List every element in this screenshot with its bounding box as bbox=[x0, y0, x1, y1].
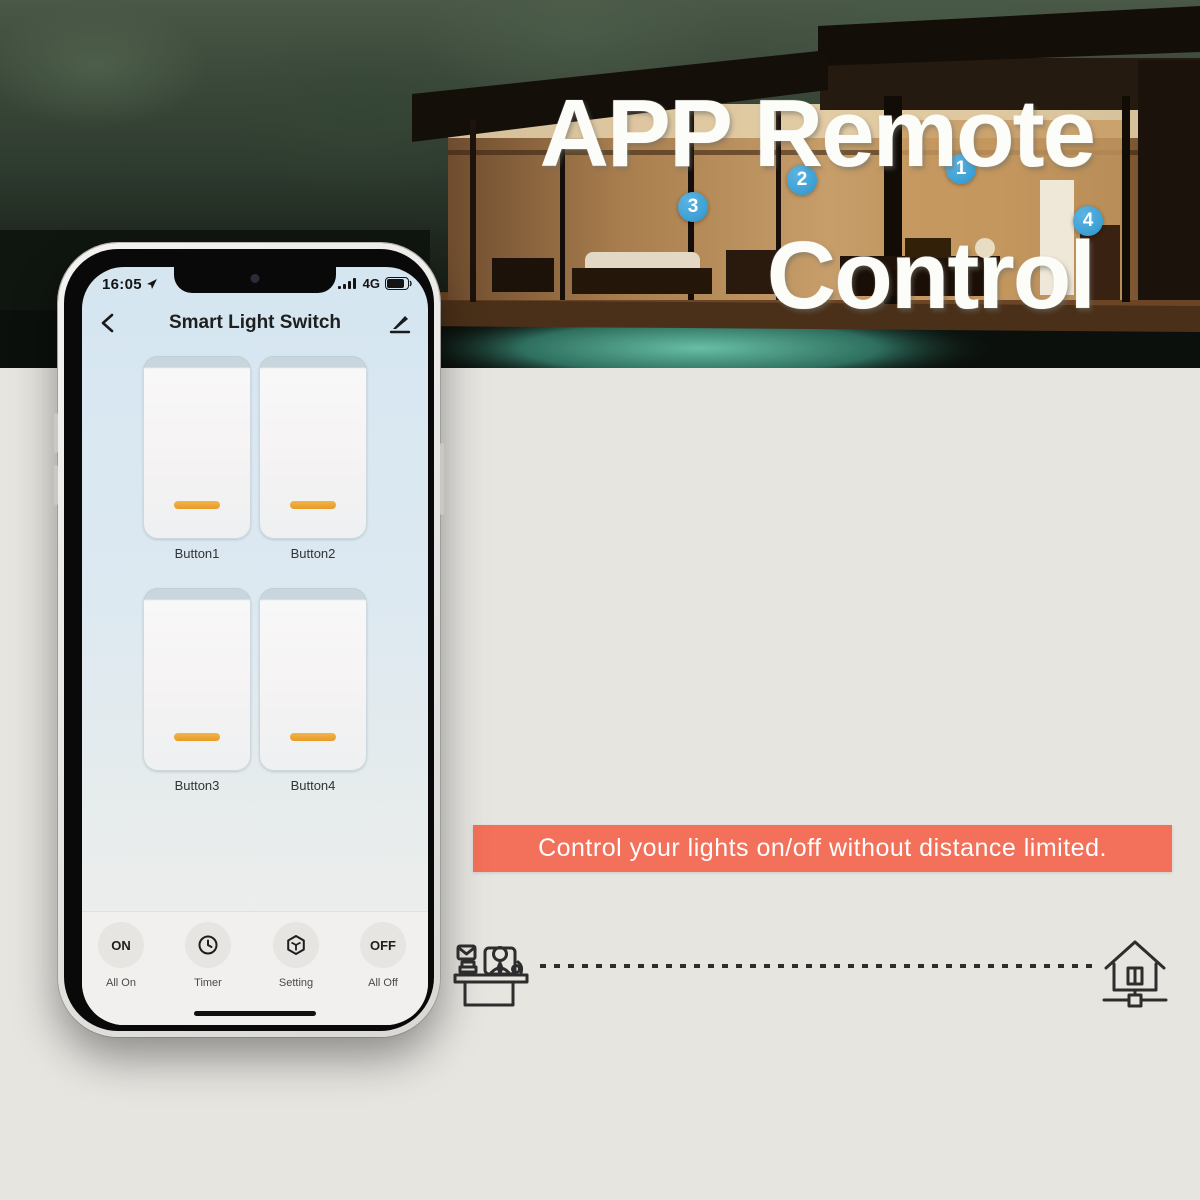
switch-button-3[interactable] bbox=[143, 588, 251, 771]
switch-button-1[interactable] bbox=[143, 356, 251, 539]
smartphone: 16:05 4G bbox=[58, 243, 440, 1037]
phone-screen: 16:05 4G bbox=[82, 267, 428, 1025]
notch bbox=[174, 267, 336, 293]
all-off-label: All Off bbox=[340, 977, 426, 989]
switch-label-3: Button3 bbox=[143, 778, 251, 793]
person-at-desk-icon bbox=[452, 934, 532, 1008]
headline-line-2: Control bbox=[540, 228, 1094, 324]
setting-button[interactable] bbox=[273, 922, 319, 968]
volume-up-button bbox=[54, 413, 58, 453]
home-indicator[interactable] bbox=[194, 1011, 316, 1016]
network-type-text: 4G bbox=[363, 276, 380, 291]
switch-label-1: Button1 bbox=[143, 546, 251, 561]
edit-button[interactable] bbox=[388, 312, 412, 336]
location-arrow-icon bbox=[146, 278, 158, 290]
phone-bezel: 16:05 4G bbox=[64, 249, 434, 1031]
timer-icon bbox=[197, 934, 219, 956]
all-off-button[interactable]: OFF bbox=[360, 922, 406, 968]
off-text-icon: OFF bbox=[370, 938, 396, 953]
headline-line-1: APP Remote bbox=[540, 86, 1094, 182]
switch-button-4[interactable] bbox=[259, 588, 367, 771]
switch-indicator-1 bbox=[174, 501, 220, 509]
headline: APP Remote Control bbox=[540, 86, 1094, 324]
app-header: Smart Light Switch bbox=[82, 307, 428, 341]
all-on-label: All On bbox=[82, 977, 164, 989]
all-on-button[interactable]: ON bbox=[98, 922, 144, 968]
volume-down-button bbox=[54, 465, 58, 505]
timer-button[interactable] bbox=[185, 922, 231, 968]
switch-label-2: Button2 bbox=[259, 546, 367, 561]
all-off-item: OFF All Off bbox=[340, 922, 426, 989]
timer-item: Timer bbox=[165, 922, 251, 989]
timer-label: Timer bbox=[165, 977, 251, 989]
setting-label: Setting bbox=[253, 977, 339, 989]
setting-item: Setting bbox=[253, 922, 339, 989]
clock-text: 16:05 bbox=[102, 276, 158, 293]
caption-banner: Control your lights on/off without dista… bbox=[473, 825, 1172, 872]
signal-icon bbox=[338, 277, 358, 290]
on-text-icon: ON bbox=[111, 938, 131, 953]
pencil-icon bbox=[388, 312, 412, 336]
switch-indicator-3 bbox=[174, 733, 220, 741]
setting-icon bbox=[285, 934, 307, 956]
switch-button-2[interactable] bbox=[259, 356, 367, 539]
camera-dot bbox=[251, 274, 260, 283]
page-title: Smart Light Switch bbox=[82, 312, 428, 334]
switch-indicator-4 bbox=[290, 733, 336, 741]
power-button bbox=[440, 443, 444, 515]
smart-home-icon bbox=[1098, 932, 1172, 1008]
distance-dashed-line bbox=[540, 964, 1092, 968]
bottom-toolbar: ON All On Timer bbox=[82, 911, 428, 1025]
switch-indicator-2 bbox=[290, 501, 336, 509]
switch-label-4: Button4 bbox=[259, 778, 367, 793]
all-on-item: ON All On bbox=[82, 922, 164, 989]
battery-icon bbox=[385, 277, 412, 290]
